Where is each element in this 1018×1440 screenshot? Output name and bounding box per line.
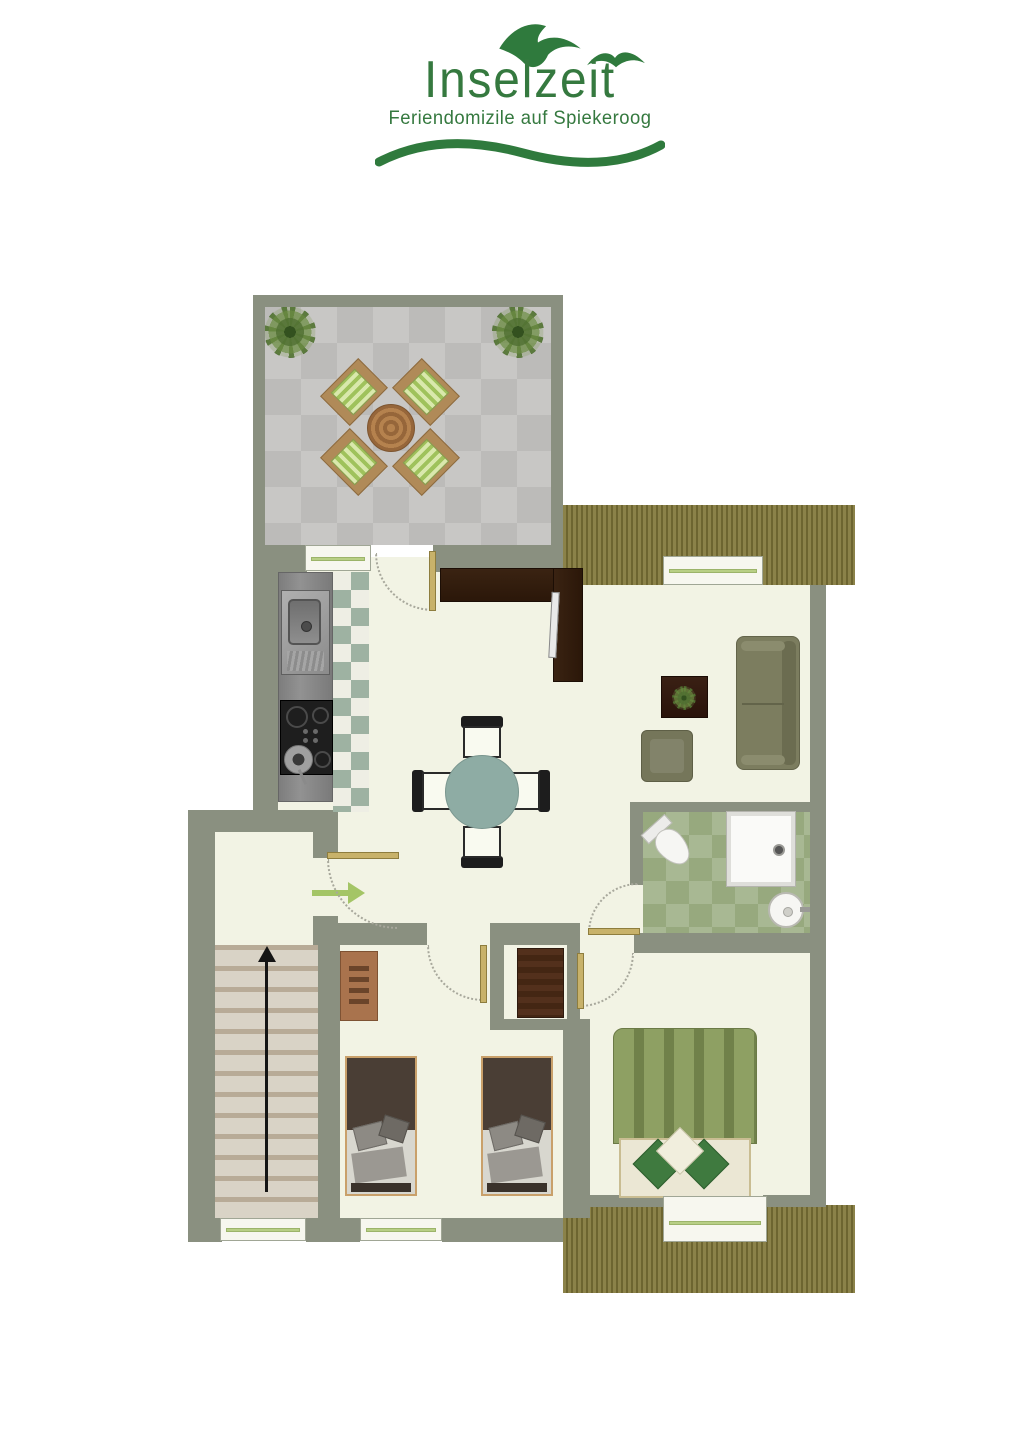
shower-tray	[727, 812, 795, 886]
patio-table	[367, 404, 415, 452]
wall	[634, 933, 810, 953]
window	[360, 1218, 442, 1241]
single-bed	[345, 1056, 417, 1196]
wall	[318, 923, 427, 945]
door-leaf	[429, 551, 436, 611]
dresser	[340, 951, 378, 1021]
faucet-icon	[301, 621, 312, 632]
wall	[253, 295, 265, 557]
wall	[318, 945, 340, 1218]
single-bed	[481, 1056, 553, 1196]
door-leaf	[327, 852, 399, 859]
window	[305, 545, 371, 571]
door-leaf	[577, 953, 584, 1009]
wall	[810, 585, 826, 1207]
wardrobe	[517, 948, 564, 1018]
door-leaf	[480, 945, 487, 1003]
window	[663, 1196, 767, 1242]
shower-drain-icon	[773, 844, 785, 856]
wall	[253, 557, 278, 810]
wall	[188, 810, 215, 1242]
washbasin-icon	[768, 892, 804, 928]
wall	[763, 1195, 826, 1207]
wall	[551, 295, 563, 557]
page: Inselzeit Feriendomizile auf Spiekeroog	[0, 0, 1018, 1440]
dining-table	[445, 755, 519, 829]
stairs-up-arrow-icon	[258, 946, 276, 962]
dining-chair	[463, 726, 501, 758]
plant-icon	[264, 306, 316, 358]
wall	[188, 1218, 222, 1242]
wall	[630, 802, 826, 812]
window	[663, 556, 763, 585]
kitchen-stove	[280, 700, 333, 775]
door-leaf	[588, 928, 640, 935]
wall	[253, 295, 563, 307]
plant-icon	[672, 686, 696, 710]
tv-sideboard	[440, 568, 563, 602]
armchair	[641, 730, 693, 782]
wall	[306, 1218, 360, 1242]
window	[220, 1218, 306, 1241]
dining-chair	[463, 826, 501, 858]
wall	[442, 1218, 563, 1242]
wall	[563, 1019, 590, 1218]
double-bed	[613, 1028, 757, 1198]
stairs-up-arrow-icon	[265, 960, 268, 1192]
sofa	[736, 636, 800, 770]
plant-icon	[492, 306, 544, 358]
floor-plan	[0, 0, 1018, 1440]
wall	[490, 923, 504, 1030]
kitchen-floor-tiles	[333, 572, 369, 812]
kitchen-sink	[281, 590, 330, 675]
